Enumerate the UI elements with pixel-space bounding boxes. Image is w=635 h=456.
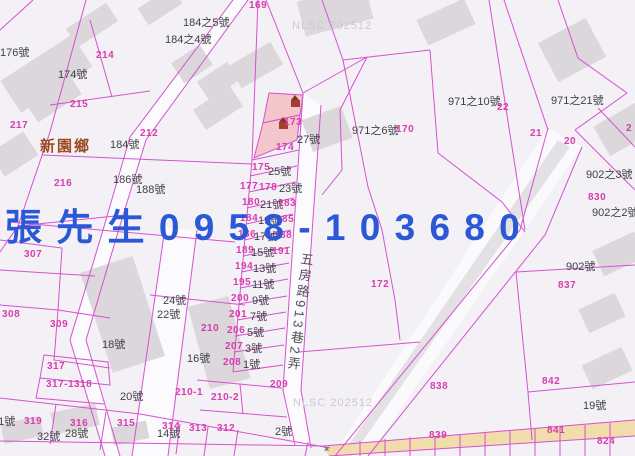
cadastral-map[interactable]: 184之5號184之4號176號174號184號186號188號27號25號23…	[0, 0, 635, 456]
contact-overlay-text: 張 先 生 0 9 5 8 - 1 0 3 6 8 0	[5, 197, 522, 251]
township-name-label: 新園鄉	[40, 135, 91, 156]
